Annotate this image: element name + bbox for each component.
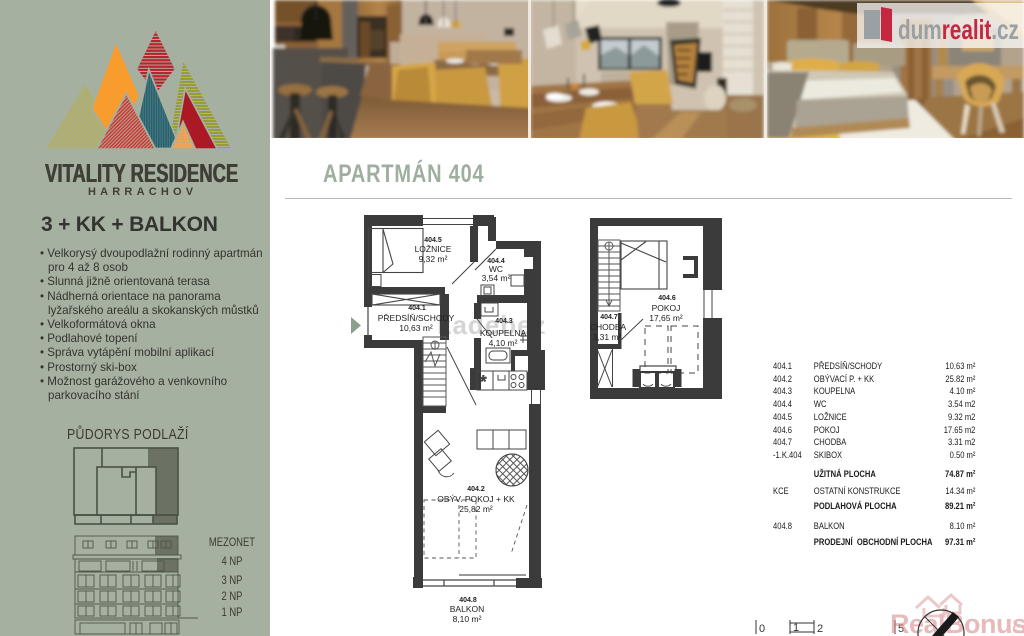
svg-text:9,32 m²: 9,32 m² [419, 254, 448, 264]
svg-text:BALKON: BALKON [450, 604, 485, 614]
svg-text:dumrealit.cz: dumrealit.cz [898, 15, 1019, 46]
svg-text:PŘEDSÍŇ/SCHODY: PŘEDSÍŇ/SCHODY [378, 313, 455, 323]
svg-text:POKOJ: POKOJ [652, 303, 681, 313]
svg-text:404.3: 404.3 [495, 318, 513, 325]
svg-text:OBÝV. POKOJ + KK: OBÝV. POKOJ + KK [437, 494, 515, 504]
svg-text:2: 2 [817, 623, 823, 635]
svg-text:KOUPELNA: KOUPELNA [480, 328, 527, 338]
svg-text:404.1: 404.1 [408, 305, 426, 312]
svg-text:*: * [480, 372, 487, 391]
svg-text:3,54 m²: 3,54 m² [482, 273, 511, 283]
svg-text:4,10 m²: 4,10 m² [489, 338, 518, 348]
svg-text:404.5: 404.5 [424, 237, 442, 244]
svg-text:RealBonus: RealBonus [890, 609, 1024, 636]
svg-text:8,10 m²: 8,10 m² [453, 614, 482, 624]
svg-text:3,31 m²: 3,31 m² [593, 332, 622, 342]
svg-text:0: 0 [759, 623, 765, 635]
svg-text:25,82 m²: 25,82 m² [459, 504, 493, 514]
svg-text:10,63 m²: 10,63 m² [399, 323, 433, 333]
svg-text:17,65 m²: 17,65 m² [649, 313, 683, 323]
svg-text:CHODBA: CHODBA [590, 322, 627, 332]
svg-text:.cz: .cz [1008, 620, 1024, 636]
svg-text:404.6: 404.6 [658, 295, 676, 302]
svg-text:404.8: 404.8 [459, 597, 477, 604]
svg-text:LOŽNICE: LOŽNICE [415, 244, 452, 254]
svg-text:1: 1 [793, 622, 799, 634]
svg-text:404.7: 404.7 [600, 314, 618, 321]
svg-text:404.2: 404.2 [467, 486, 485, 493]
